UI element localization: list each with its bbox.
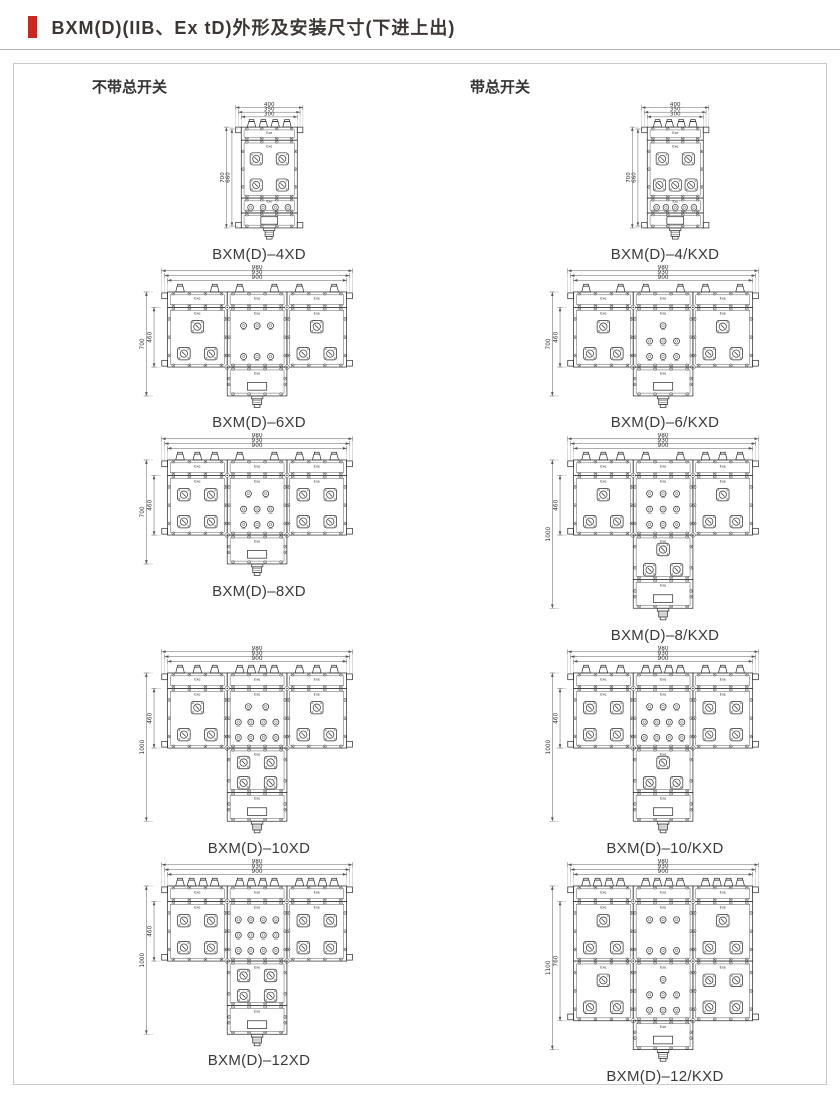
svg-text:Exe: Exe [660, 312, 666, 316]
technical-drawing-svg: 9809309001100760ExeExeExeExeExeExeExeExe… [535, 859, 795, 1065]
svg-text:300: 300 [670, 111, 681, 117]
svg-text:460: 460 [554, 712, 560, 723]
technical-drawing-svg: 980930900700460ExeExeExeExeExeExeExe [129, 433, 389, 579]
drawing-caption: BXM(D)–4XD [212, 246, 306, 263]
drawing-caption: BXM(D)–8/KXD [611, 627, 720, 644]
svg-text:460: 460 [148, 500, 154, 511]
technical-drawing-svg: 9809309001000460ExeExeExeExeExeExeExeExe [535, 646, 795, 837]
drawing-row: 400350300700660ExeExeExeBXM(D)–4XD400350… [14, 101, 826, 263]
svg-text:660: 660 [632, 172, 638, 183]
title-accent-bar [28, 16, 37, 38]
technical-drawing-svg: 980930900700460ExeExeExeExeExeExeExe [129, 265, 389, 411]
drawing-cell-left: 400350300700660ExeExeExeBXM(D)–4XD [14, 101, 420, 263]
svg-text:Exe: Exe [600, 905, 606, 909]
drawing-cell-left: 9809309001000460ExeExeExeExeExeExeExeExe… [14, 859, 420, 1085]
svg-text:Exe: Exe [314, 693, 320, 697]
svg-text:Exe: Exe [254, 905, 260, 909]
svg-text:1100: 1100 [546, 960, 552, 975]
svg-text:Exe: Exe [254, 540, 260, 544]
svg-text:Exe: Exe [194, 905, 200, 909]
svg-text:Exe: Exe [660, 752, 666, 756]
svg-text:700: 700 [140, 506, 146, 517]
svg-text:Exe: Exe [314, 480, 320, 484]
svg-text:900: 900 [252, 656, 263, 662]
svg-text:Exe: Exe [720, 312, 726, 316]
technical-drawing-figure: 9809309001000460ExeExeExeExeExeExeExeExe… [535, 433, 795, 644]
svg-text:660: 660 [226, 172, 232, 183]
svg-text:Exe: Exe [600, 965, 606, 969]
svg-text:Exe: Exe [660, 371, 666, 375]
technical-drawing-figure: 980930900700460ExeExeExeExeExeExeExeBXM(… [129, 265, 389, 431]
svg-text:Exe: Exe [600, 296, 606, 300]
drawing-cell-right: 9809309001000460ExeExeExeExeExeExeExeExe… [420, 433, 826, 644]
technical-drawing-figure: 9809309001000460ExeExeExeExeExeExeExeExe… [535, 646, 795, 857]
technical-drawing-svg: 980930900700460ExeExeExeExeExeExeExe [535, 265, 795, 411]
column-header-without-main-switch: 不带总开关 [14, 76, 420, 97]
drawing-caption: BXM(D)–4/KXD [611, 246, 720, 263]
svg-text:460: 460 [554, 500, 560, 511]
page-header: BXM(D)(IIB、Ex tD)外形及安装尺寸(下进上出) [0, 0, 840, 40]
svg-text:Exe: Exe [254, 312, 260, 316]
column-headers: 不带总开关 带总开关 [14, 76, 826, 97]
svg-text:900: 900 [658, 275, 669, 281]
svg-text:Exe: Exe [266, 144, 272, 148]
drawing-row: 980930900700460ExeExeExeExeExeExeExeBXM(… [14, 265, 826, 431]
svg-text:Exe: Exe [660, 584, 666, 588]
svg-text:700: 700 [140, 338, 146, 349]
svg-text:Exe: Exe [660, 296, 666, 300]
svg-text:Exe: Exe [660, 905, 666, 909]
svg-text:Exe: Exe [254, 797, 260, 801]
technical-drawing-figure: 400350300700660ExeExeExeBXM(D)–4/KXD [595, 101, 735, 263]
svg-text:Exe: Exe [600, 677, 606, 681]
svg-text:Exe: Exe [314, 890, 320, 894]
technical-drawing-figure: 9809309001000460ExeExeExeExeExeExeExeExe… [129, 646, 389, 857]
technical-drawing-figure: 9809309001000460ExeExeExeExeExeExeExeExe… [129, 859, 389, 1070]
svg-text:Exe: Exe [672, 131, 678, 135]
drawing-caption: BXM(D)–10XD [208, 840, 311, 857]
svg-text:Exe: Exe [194, 312, 200, 316]
drawing-cell-right: 9809309001100760ExeExeExeExeExeExeExeExe… [420, 859, 826, 1085]
svg-text:Exe: Exe [600, 464, 606, 468]
svg-text:Exe: Exe [266, 199, 272, 203]
drawing-caption: BXM(D)–8XD [212, 583, 306, 600]
svg-text:Exe: Exe [600, 480, 606, 484]
drawing-cell-right: 400350300700660ExeExeExeBXM(D)–4/KXD [420, 101, 826, 263]
svg-text:Exe: Exe [314, 312, 320, 316]
technical-drawing-figure: 400350300700660ExeExeExeBXM(D)–4XD [189, 101, 329, 263]
svg-text:Exe: Exe [660, 965, 666, 969]
svg-text:Exe: Exe [314, 464, 320, 468]
svg-text:Exe: Exe [660, 797, 666, 801]
svg-text:Exe: Exe [660, 677, 666, 681]
svg-text:Exe: Exe [314, 905, 320, 909]
svg-text:Exe: Exe [672, 199, 678, 203]
technical-drawing-svg: 9809309001000460ExeExeExeExeExeExeExeExe [129, 859, 389, 1050]
drawing-row: 980930900700460ExeExeExeExeExeExeExeBXM(… [14, 433, 826, 644]
svg-text:900: 900 [658, 443, 669, 449]
svg-text:Exe: Exe [660, 480, 666, 484]
svg-text:900: 900 [658, 868, 669, 874]
svg-text:Exe: Exe [254, 677, 260, 681]
svg-text:Exe: Exe [720, 905, 726, 909]
drawing-cell-left: 9809309001000460ExeExeExeExeExeExeExeExe… [14, 646, 420, 857]
drawing-row: 9809309001000460ExeExeExeExeExeExeExeExe… [14, 646, 826, 857]
drawing-caption: BXM(D)–10/KXD [606, 840, 723, 857]
svg-text:Exe: Exe [194, 890, 200, 894]
drawing-cell-left: 980930900700460ExeExeExeExeExeExeExeBXM(… [14, 433, 420, 644]
svg-text:760: 760 [554, 955, 560, 966]
svg-text:Exe: Exe [720, 464, 726, 468]
svg-text:1000: 1000 [140, 952, 146, 967]
svg-text:Exe: Exe [660, 540, 666, 544]
svg-text:Exe: Exe [254, 296, 260, 300]
svg-text:Exe: Exe [254, 464, 260, 468]
svg-text:Exe: Exe [600, 693, 606, 697]
technical-drawing-svg: 400350300700660ExeExeExe [595, 101, 735, 243]
svg-text:1000: 1000 [546, 739, 552, 754]
svg-text:Exe: Exe [600, 890, 606, 894]
svg-text:Exe: Exe [660, 1025, 666, 1029]
svg-text:460: 460 [148, 331, 154, 342]
svg-text:Exe: Exe [254, 890, 260, 894]
svg-text:Exe: Exe [194, 464, 200, 468]
drawing-cell-right: 980930900700460ExeExeExeExeExeExeExeBXM(… [420, 265, 826, 431]
drawing-caption: BXM(D)–6/KXD [611, 414, 720, 431]
svg-text:Exe: Exe [660, 464, 666, 468]
svg-text:Exe: Exe [672, 144, 678, 148]
svg-text:900: 900 [658, 656, 669, 662]
svg-text:Exe: Exe [254, 752, 260, 756]
svg-text:900: 900 [252, 275, 263, 281]
technical-drawing-figure: 980930900700460ExeExeExeExeExeExeExeBXM(… [129, 433, 389, 599]
svg-text:460: 460 [554, 331, 560, 342]
svg-text:Exe: Exe [254, 965, 260, 969]
drawing-row: 9809309001000460ExeExeExeExeExeExeExeExe… [14, 859, 826, 1085]
drawing-cell-left: 980930900700460ExeExeExeExeExeExeExeBXM(… [14, 265, 420, 431]
svg-text:Exe: Exe [194, 296, 200, 300]
page-title: BXM(D)(IIB、Ex tD)外形及安装尺寸(下进上出) [51, 18, 455, 38]
svg-text:1000: 1000 [546, 527, 552, 542]
svg-text:460: 460 [148, 925, 154, 936]
svg-text:Exe: Exe [254, 480, 260, 484]
svg-text:700: 700 [546, 338, 552, 349]
svg-text:Exe: Exe [266, 131, 272, 135]
svg-text:Exe: Exe [194, 480, 200, 484]
technical-drawing-svg: 9809309001000460ExeExeExeExeExeExeExeExe [129, 646, 389, 837]
svg-text:Exe: Exe [720, 890, 726, 894]
svg-text:Exe: Exe [720, 677, 726, 681]
technical-drawing-svg: 400350300700660ExeExeExe [189, 101, 329, 243]
drawing-caption: BXM(D)–6XD [212, 414, 306, 431]
technical-drawing-figure: 9809309001100760ExeExeExeExeExeExeExeExe… [535, 859, 795, 1085]
svg-text:460: 460 [148, 712, 154, 723]
svg-text:Exe: Exe [254, 1009, 260, 1013]
header-divider [0, 49, 840, 50]
svg-text:Exe: Exe [660, 890, 666, 894]
svg-text:Exe: Exe [314, 296, 320, 300]
svg-text:Exe: Exe [254, 693, 260, 697]
svg-text:300: 300 [264, 111, 275, 117]
svg-text:Exe: Exe [254, 371, 260, 375]
svg-text:Exe: Exe [720, 480, 726, 484]
content-box: 不带总开关 带总开关 400350300700660ExeExeExeBXM(D… [13, 63, 827, 1085]
catalog-page: BXM(D)(IIB、Ex tD)外形及安装尺寸(下进上出) 不带总开关 带总开… [0, 0, 840, 1085]
svg-text:Exe: Exe [660, 693, 666, 697]
technical-drawing-svg: 9809309001000460ExeExeExeExeExeExeExeExe [535, 433, 795, 624]
svg-text:Exe: Exe [600, 312, 606, 316]
svg-text:1000: 1000 [140, 739, 146, 754]
column-header-with-main-switch: 带总开关 [420, 76, 826, 97]
svg-text:900: 900 [252, 868, 263, 874]
drawing-caption: BXM(D)–12/KXD [606, 1068, 723, 1085]
svg-text:Exe: Exe [720, 693, 726, 697]
svg-text:900: 900 [252, 443, 263, 449]
svg-text:Exe: Exe [194, 693, 200, 697]
technical-drawing-figure: 980930900700460ExeExeExeExeExeExeExeBXM(… [535, 265, 795, 431]
drawing-caption: BXM(D)–12XD [208, 1052, 311, 1069]
drawing-rows: 400350300700660ExeExeExeBXM(D)–4XD400350… [14, 101, 826, 1085]
svg-text:Exe: Exe [314, 677, 320, 681]
svg-text:Exe: Exe [720, 965, 726, 969]
drawing-cell-right: 9809309001000460ExeExeExeExeExeExeExeExe… [420, 646, 826, 857]
svg-text:Exe: Exe [194, 677, 200, 681]
svg-text:Exe: Exe [720, 296, 726, 300]
